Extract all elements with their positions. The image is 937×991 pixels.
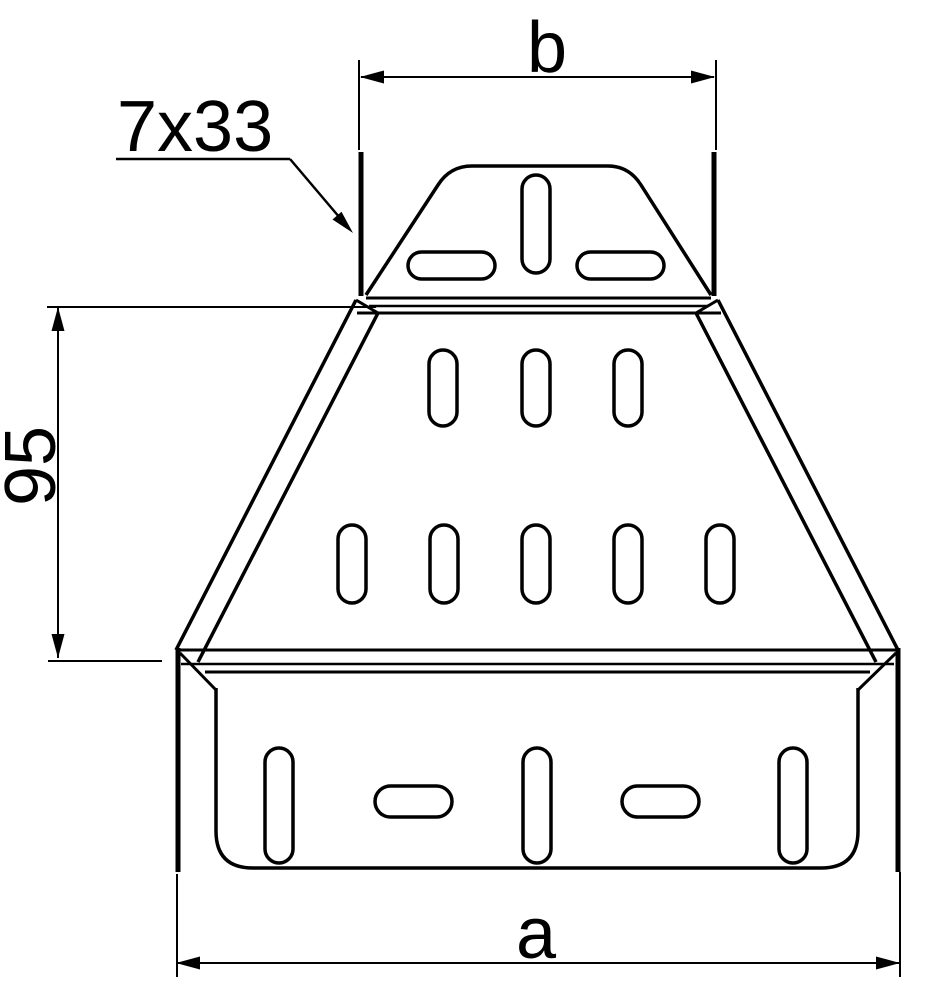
slot <box>522 525 550 603</box>
slot <box>622 786 699 817</box>
top-connector-horizontal-slot-right <box>577 252 664 279</box>
body-slot-row-lower <box>338 525 734 603</box>
body-slot-row-upper <box>429 350 642 426</box>
dimension-a-arrow-left <box>176 957 200 970</box>
slot <box>614 350 642 426</box>
base-slots <box>265 748 807 863</box>
slot <box>523 748 551 863</box>
dimension-a-arrow-right <box>876 957 900 970</box>
body-right-wall-inner-line <box>696 313 876 662</box>
slot-spec-callout: 7x33 <box>116 87 353 233</box>
top-connector-vertical-slot <box>522 175 550 273</box>
dimension-b-arrow-left <box>360 71 384 84</box>
reducer-technical-drawing: b 7x33 95 a <box>0 0 937 991</box>
slot <box>522 350 550 426</box>
slot <box>430 525 458 603</box>
slot-spec-arrowhead <box>333 212 354 233</box>
slot-spec-label: 7x33 <box>117 87 273 167</box>
slot <box>779 748 807 863</box>
body-right-wall-outer-line <box>718 300 898 650</box>
slot <box>706 525 734 603</box>
body-left-wall-inner-line <box>198 313 378 662</box>
dimension-b: b <box>359 8 716 150</box>
technical-drawing-canvas: b 7x33 95 a <box>0 0 937 991</box>
top-connector-horizontal-slot-left <box>408 252 495 279</box>
slot-spec-leader-line <box>290 159 340 218</box>
tapered-body-section <box>176 300 898 662</box>
dimension-95-label: 95 <box>0 426 71 506</box>
slot <box>375 786 452 817</box>
slot <box>338 525 366 603</box>
dimension-95-arrow-bottom <box>52 634 65 658</box>
dimension-b-arrow-right <box>691 71 715 84</box>
slot <box>265 748 293 863</box>
body-left-wall-outer-line <box>176 300 356 650</box>
dimension-a: a <box>176 872 900 977</box>
slot <box>429 350 457 426</box>
dimension-95: 95 <box>0 307 376 661</box>
bottom-base-section <box>176 648 899 872</box>
top-connector-section <box>357 152 721 313</box>
dimension-95-arrow-top <box>52 307 65 331</box>
slot <box>614 525 642 603</box>
base-face-outline <box>216 688 858 868</box>
